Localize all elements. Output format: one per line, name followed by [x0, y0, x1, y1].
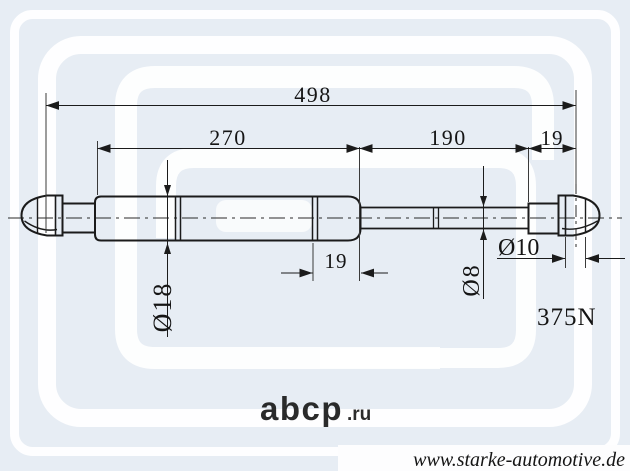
dim-label-dia8: Ø8 [459, 263, 485, 296]
dim-label-270: 270 [209, 125, 247, 150]
body-seam-right [313, 198, 318, 240]
portal-tld-text: .ru [347, 404, 371, 425]
dim-label-498: 498 [294, 82, 332, 107]
dim-label-dia10: Ø10 [498, 235, 539, 261]
dimension-body-diameter: Ø18 [148, 160, 177, 337]
body-seam-left [176, 198, 181, 240]
dimension-end-fitting: 19 [529, 126, 576, 150]
dimension-rod-length: 190 [360, 125, 529, 150]
dimension-piston-section: 19 [281, 249, 388, 273]
dim-label-19-piston: 19 [325, 249, 348, 273]
abcp-watermark: abcp .ru [260, 390, 371, 427]
force-rating-label: 375N [537, 304, 597, 331]
dimension-rod-diameter: Ø8 [459, 166, 487, 299]
website-url: www.starke-automotive.de [413, 449, 625, 471]
dim-label-dia18: Ø18 [148, 282, 177, 333]
portal-name-text: abcp [260, 390, 343, 427]
dimension-total-length: 498 [46, 82, 576, 107]
dim-label-190: 190 [429, 125, 467, 150]
dim-label-19-end: 19 [541, 126, 564, 150]
gas-spring-drawing: 498 270 190 19 19 Ø18 [0, 0, 630, 471]
left-ball-socket [22, 196, 96, 236]
technical-drawing-image: 498 270 190 19 19 Ø18 [0, 0, 630, 471]
dimension-body-length: 270 [98, 125, 360, 150]
footer: www.starke-automotive.de [338, 445, 630, 471]
dimension-eye-diameter: Ø10 [497, 235, 625, 261]
